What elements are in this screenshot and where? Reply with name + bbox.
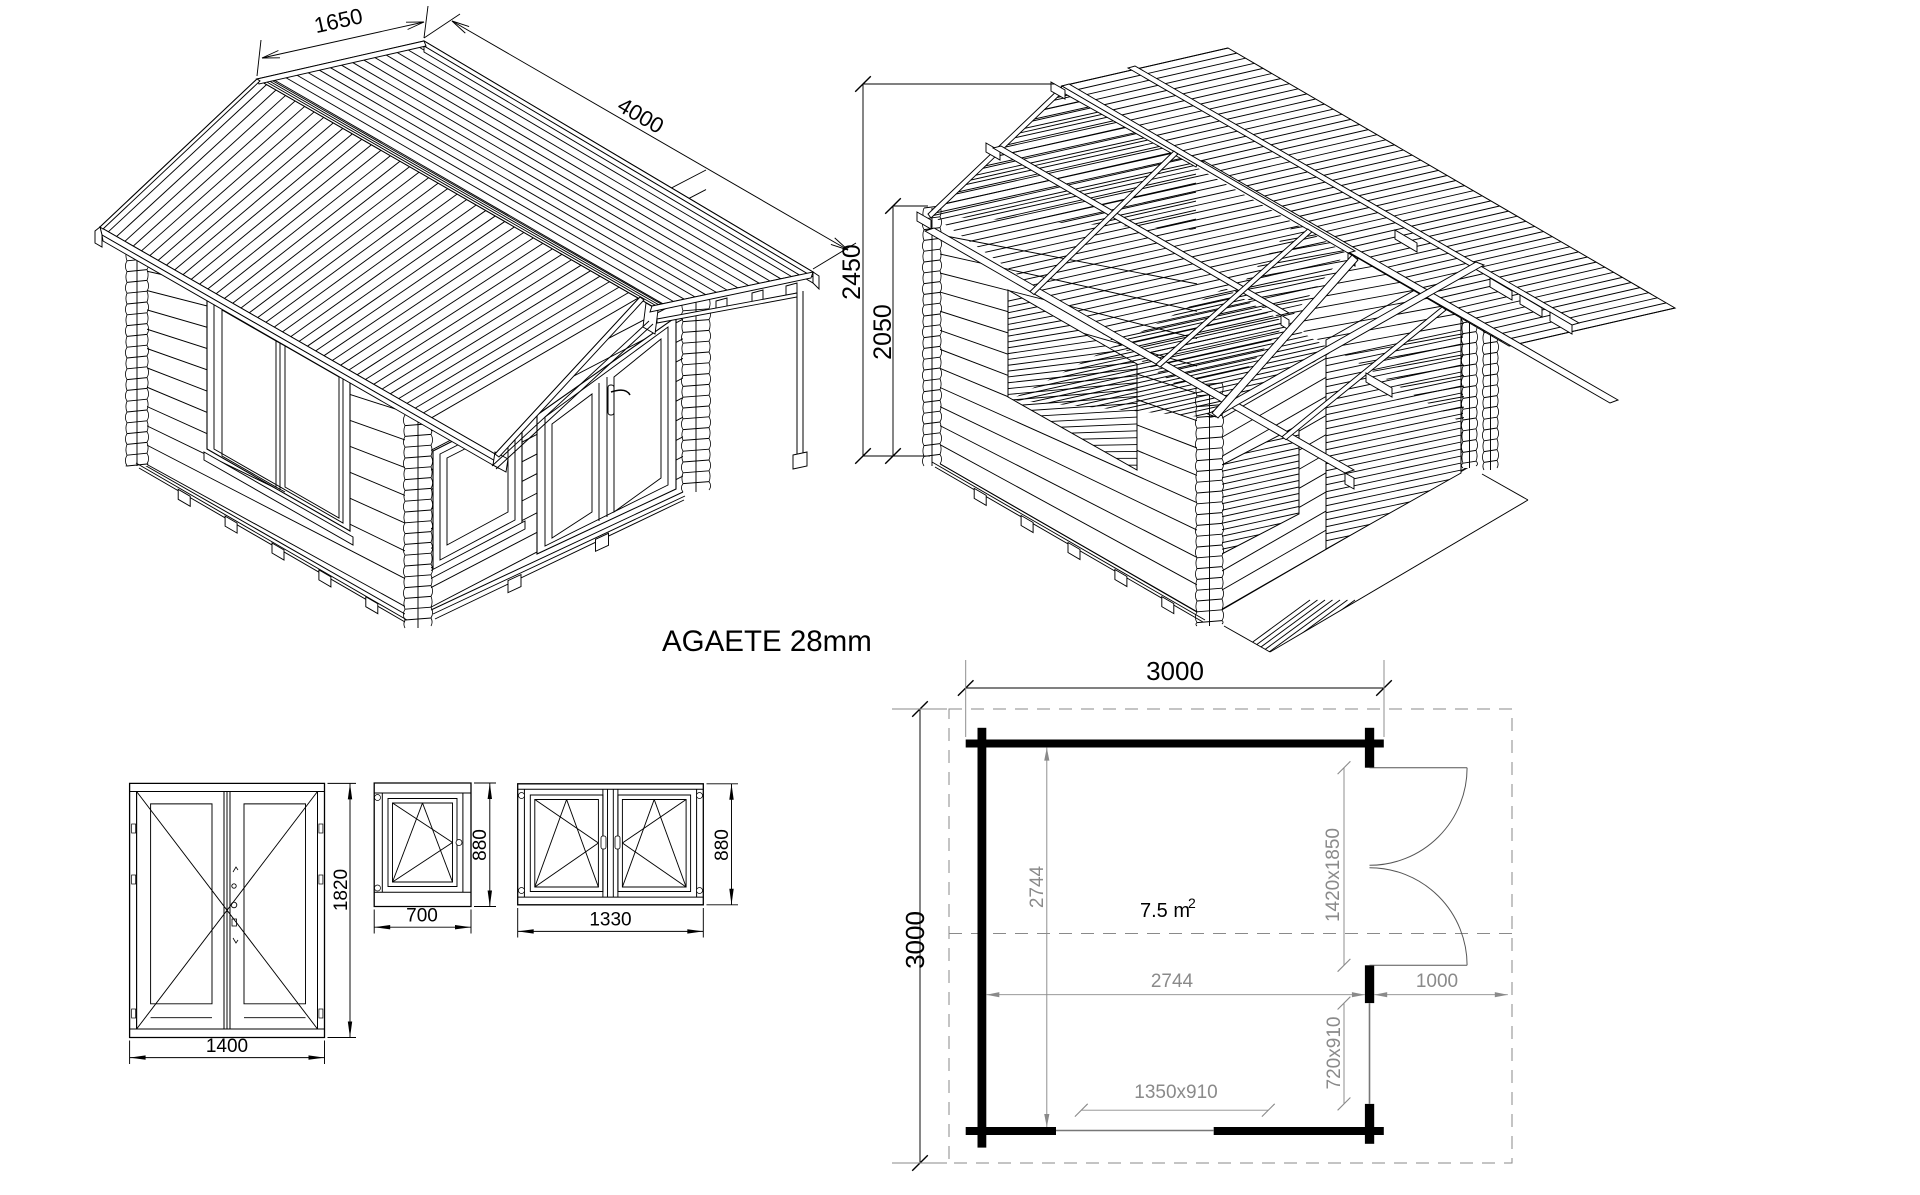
svg-text:2: 2 bbox=[1188, 895, 1196, 911]
svg-text:1350x910: 1350x910 bbox=[1134, 1082, 1217, 1103]
svg-text:1330: 1330 bbox=[589, 910, 631, 931]
svg-text:2744: 2744 bbox=[1151, 971, 1194, 992]
svg-text:AGAETE 28mm: AGAETE 28mm bbox=[662, 625, 872, 658]
svg-text:1400: 1400 bbox=[206, 1036, 248, 1057]
svg-text:2050: 2050 bbox=[869, 304, 897, 360]
svg-text:1420x1850: 1420x1850 bbox=[1323, 828, 1344, 922]
svg-text:1000: 1000 bbox=[1416, 971, 1458, 992]
svg-text:2450: 2450 bbox=[838, 244, 866, 300]
svg-text:1820: 1820 bbox=[331, 869, 352, 911]
svg-text:700: 700 bbox=[406, 906, 438, 927]
svg-text:3000: 3000 bbox=[900, 911, 930, 969]
svg-text:7.5 m: 7.5 m bbox=[1140, 900, 1190, 922]
svg-text:720x910: 720x910 bbox=[1324, 1017, 1345, 1090]
svg-text:2744: 2744 bbox=[1027, 865, 1048, 908]
svg-text:3000: 3000 bbox=[1146, 656, 1204, 686]
svg-text:880: 880 bbox=[712, 829, 733, 861]
svg-text:880: 880 bbox=[470, 829, 491, 861]
